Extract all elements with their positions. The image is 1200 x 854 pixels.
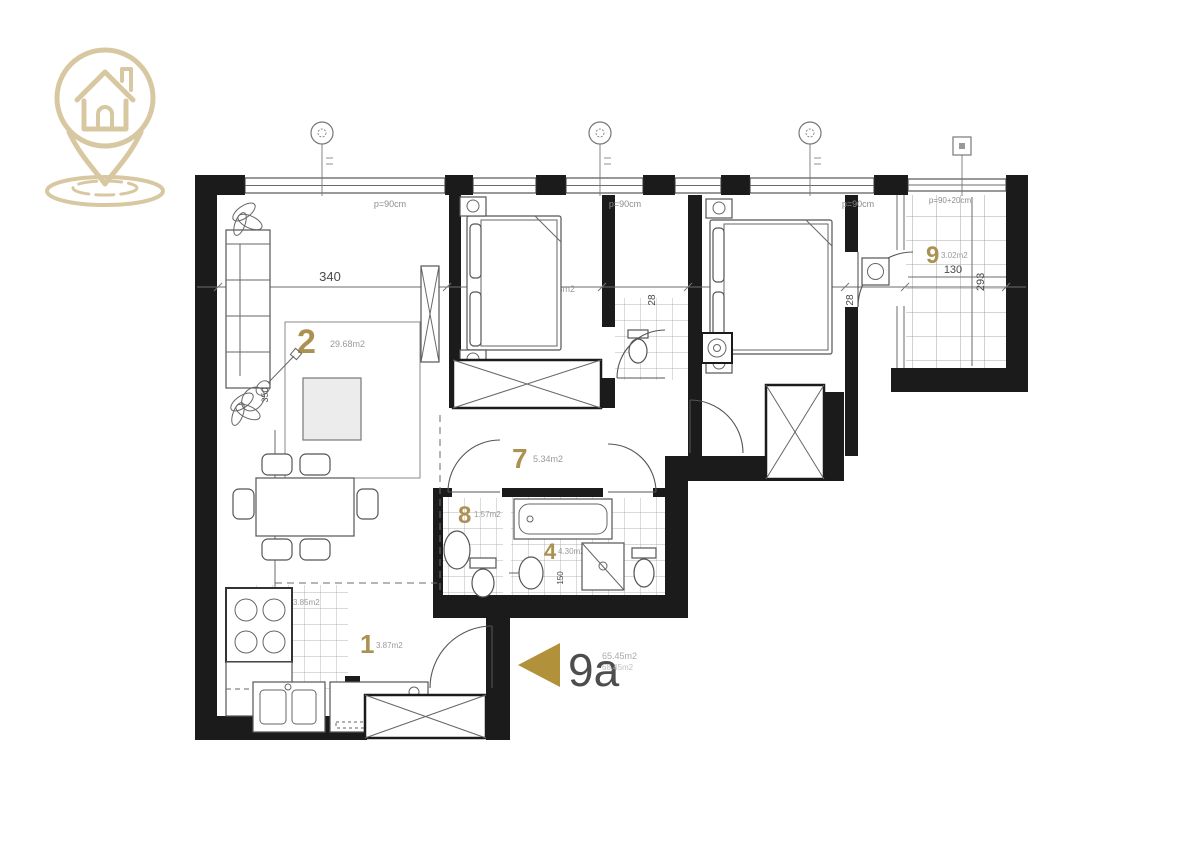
- room-number: 9: [926, 242, 939, 269]
- toilet-icon: [628, 330, 648, 363]
- chair: [357, 489, 378, 519]
- bed: [467, 216, 561, 350]
- toilet-icon: [470, 558, 496, 597]
- room-number: 4: [544, 539, 557, 564]
- unit-area-net: 65.45m2: [602, 651, 637, 661]
- room-area: 3.87m2: [376, 641, 403, 650]
- washbasin-icon: [444, 531, 470, 569]
- chair: [300, 454, 330, 475]
- terrace-parapet-label: p=90+20cm: [929, 196, 972, 205]
- pillow: [470, 224, 481, 278]
- door-swing: [448, 440, 500, 492]
- window-parapet-label: p=90cm: [842, 199, 874, 209]
- wardrobe: [453, 360, 601, 408]
- entry-door-swing: [430, 626, 492, 688]
- sofa: [226, 230, 270, 388]
- room-area: 29.68m2: [330, 339, 365, 349]
- bathtub-icon: [514, 499, 612, 539]
- floor-plan-page: 340 343 303 130 293 28 28 150 350 p=90cm…: [0, 0, 1200, 854]
- wardrobe: [766, 385, 824, 479]
- doormat: [365, 695, 486, 738]
- coffee-table: [303, 378, 361, 440]
- unit-arrow-icon: [518, 643, 560, 687]
- stove-icon: [226, 588, 292, 662]
- room-5-bedroom: 5 10.43m2: [453, 197, 601, 408]
- vent-shaft-icon: [702, 333, 732, 363]
- nightstand: [706, 199, 732, 218]
- dim-shaft-b: 28: [845, 294, 856, 306]
- tiled-floors: [250, 195, 1006, 697]
- floor-plan-canvas: 340 343 303 130 293 28 28 150 350 p=90cm…: [0, 0, 1200, 854]
- unit-label: 9a 65.45m2 68.45m2: [518, 643, 637, 696]
- nightstand: [460, 197, 486, 216]
- terrace-floor: [906, 195, 1006, 368]
- terrace-glass-wall: [897, 195, 904, 368]
- terrace-corridor: [858, 252, 913, 307]
- pillow: [470, 292, 481, 346]
- window-parapet-label: p=90cm: [609, 199, 641, 209]
- room-area: 3.02m2: [941, 251, 968, 260]
- window-parapet-label: p=90cm: [374, 199, 406, 209]
- tv-unit: [421, 266, 439, 362]
- kitchen-sink-icon: [253, 682, 325, 732]
- chair: [233, 489, 254, 519]
- dining-table: [233, 454, 378, 560]
- room-area: 3.85m2: [293, 598, 320, 607]
- room-area: 5.34m2: [533, 454, 563, 464]
- pillow: [713, 228, 724, 282]
- room-area: 1.57m2: [474, 510, 501, 519]
- shaft-wc-floor: [615, 298, 688, 380]
- room-number: 7: [512, 443, 528, 474]
- dim-room2-width: 340: [319, 269, 341, 284]
- dim-bath: 150: [556, 571, 565, 585]
- brand-logo-house-pin-icon: [47, 50, 163, 205]
- chair: [262, 454, 292, 475]
- door-swing: [608, 444, 656, 492]
- room-number: 1: [360, 629, 374, 659]
- chair: [300, 539, 330, 560]
- toilet-icon: [632, 548, 656, 587]
- shower-icon: [582, 543, 624, 590]
- unit-area-gross: 68.45m2: [602, 663, 634, 672]
- dim-shaft-a: 28: [647, 294, 658, 306]
- chair: [262, 539, 292, 560]
- room-2-living: 2 29.68m2: [226, 200, 439, 560]
- room-number: 8: [458, 502, 471, 529]
- room-6-bedroom: 6 11.79m2: [702, 199, 832, 479]
- washing-machine-icon: [862, 258, 889, 285]
- dim-terrace-width: 130: [944, 264, 962, 276]
- room-area: 4.30m2: [558, 547, 585, 556]
- dim-terrace-depth: 293: [975, 273, 987, 291]
